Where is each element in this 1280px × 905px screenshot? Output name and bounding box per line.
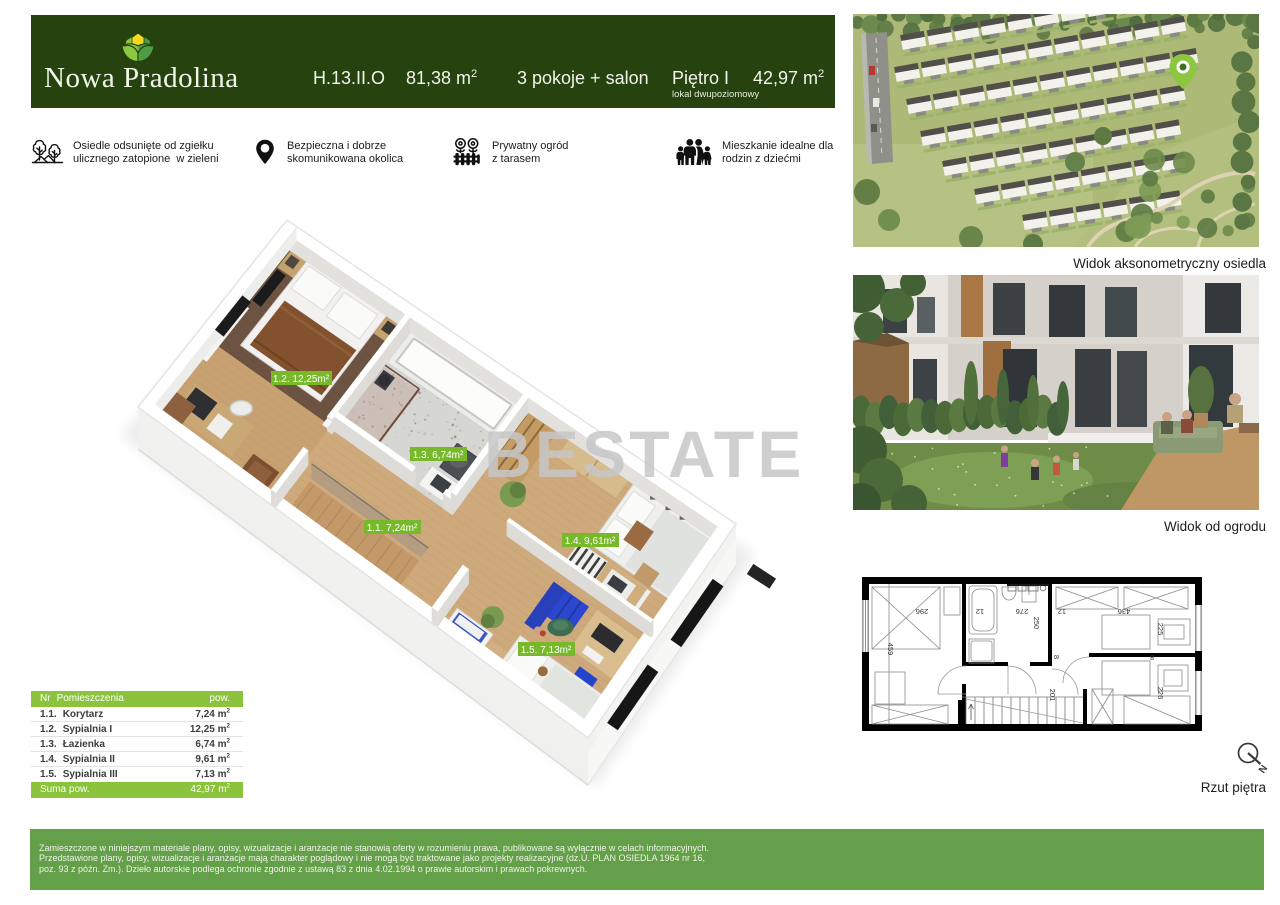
svg-text:459: 459 — [886, 643, 895, 656]
svg-text:1.1. 7,24m²: 1.1. 7,24m² — [367, 523, 418, 534]
svg-text:436: 436 — [1118, 607, 1131, 616]
svg-text:201: 201 — [1048, 689, 1057, 702]
svg-text:12: 12 — [1058, 607, 1066, 616]
svg-text:8: 8 — [1052, 655, 1061, 659]
svg-text:250: 250 — [1032, 617, 1041, 630]
svg-text:1.3. 6,74m²: 1.3. 6,74m² — [413, 450, 464, 461]
svg-text:1.5. 7,13m²: 1.5. 7,13m² — [521, 645, 572, 656]
svg-text:226: 226 — [1156, 687, 1165, 700]
svg-text:296: 296 — [916, 607, 929, 616]
svg-text:BESTATE: BESTATE — [484, 417, 805, 491]
svg-text:12: 12 — [976, 607, 984, 616]
svg-text:276: 276 — [1016, 607, 1029, 616]
svg-text:8: 8 — [1150, 653, 1154, 662]
svg-text:1.2. 12,25m²: 1.2. 12,25m² — [273, 374, 330, 385]
svg-text:1.4. 9,61m²: 1.4. 9,61m² — [565, 536, 616, 547]
svg-text:N: N — [1257, 763, 1270, 775]
svg-text:225: 225 — [1156, 623, 1165, 636]
